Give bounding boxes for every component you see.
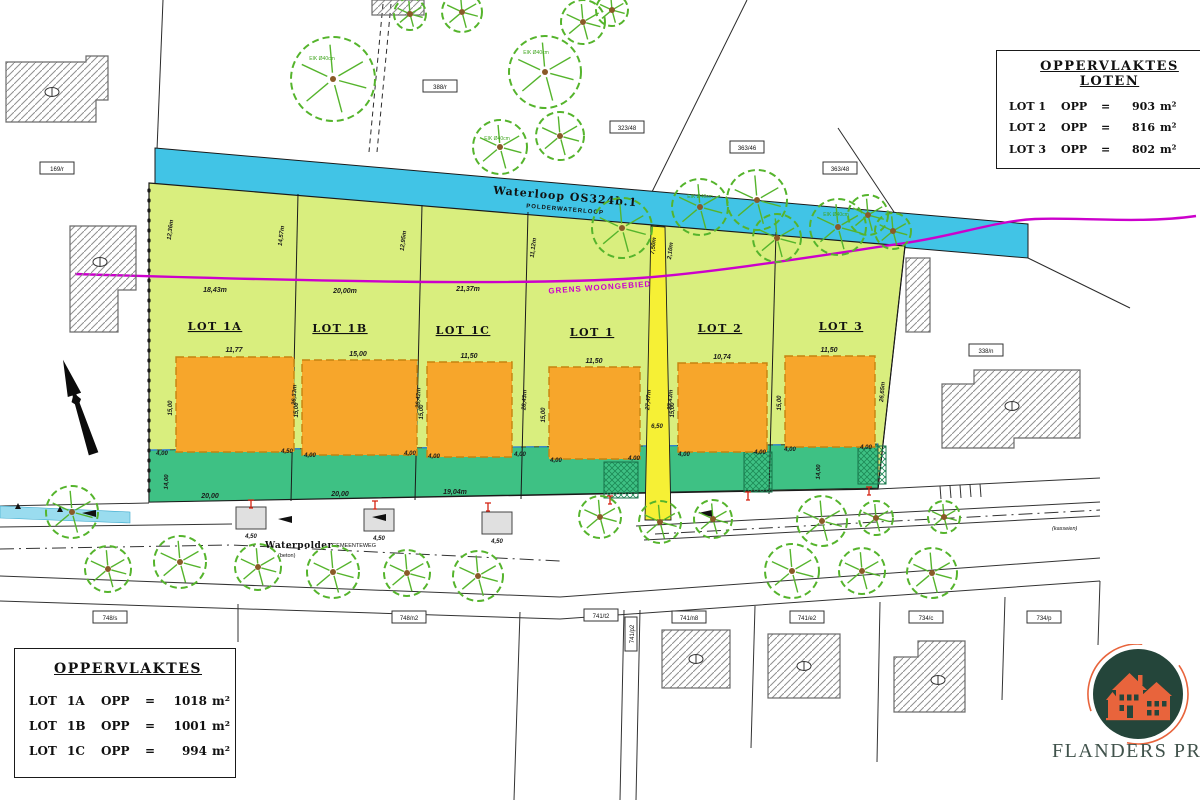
equals: = <box>145 714 163 739</box>
svg-text:169/r: 169/r <box>50 167 64 173</box>
hydrant-marker <box>485 503 491 511</box>
dim-rear: 20,00 <box>330 491 349 498</box>
parcel-label: 169/r <box>40 162 74 174</box>
area-value: 1018 <box>163 689 207 714</box>
building-zone-lot1a <box>176 357 294 452</box>
driveway-pad <box>236 507 266 529</box>
table-row: LOT 3 OPP = 802 m² <box>1009 139 1200 160</box>
building-footprint <box>372 0 424 15</box>
tree-label: EIK Ø40cm <box>484 136 510 142</box>
svg-text:363/48: 363/48 <box>831 167 850 173</box>
building-zone-lot1b <box>302 360 417 455</box>
parcel-label: 741/n8 <box>672 611 706 623</box>
area-unit: m² <box>1155 139 1179 160</box>
tree-icon <box>536 112 584 160</box>
tree-icon <box>85 546 131 592</box>
parcel-label: 323/48 <box>610 121 644 133</box>
areas-table-oppervlaktes: OPPERVLAKTES LOT 1A OPP = 1018 m² LOT 1B… <box>14 648 236 778</box>
building-zone-lot1c <box>427 362 512 457</box>
road-edge <box>0 524 232 527</box>
lot-label-1a: LOT 1A <box>188 320 243 333</box>
lot-num: 1C <box>67 739 101 764</box>
building-symbol-icon <box>689 655 703 664</box>
dim-depth: 26,33m <box>291 384 298 406</box>
tree-icon <box>694 500 732 538</box>
building-symbol-icon <box>45 88 59 97</box>
tree-icon <box>859 501 893 535</box>
table-row: LOT 1A OPP = 1018 m² <box>29 689 227 714</box>
parcel-line <box>514 612 520 800</box>
dim-margin: 4,00 <box>859 445 872 451</box>
dim-width: 11,50 <box>461 353 478 360</box>
svg-text:741/n8: 741/n8 <box>680 616 699 622</box>
driveway-pads <box>236 507 512 534</box>
area-unit: m² <box>207 714 233 739</box>
opp-label: OPP <box>101 689 145 714</box>
tree-icon <box>907 548 957 598</box>
svg-text:323/48: 323/48 <box>618 126 637 132</box>
lot-name: LOT <box>29 689 67 714</box>
dim-margin: 4,00 <box>753 450 766 456</box>
tree-icon <box>561 0 605 44</box>
area-value: 802 <box>1117 139 1155 160</box>
parcel-label: 363/46 <box>730 141 764 153</box>
areas-table-loten-title: OPPERVLAKTES LOTEN <box>1009 59 1200 89</box>
opp-label: OPP <box>101 739 145 764</box>
dim-height: 15,00 <box>777 395 783 411</box>
opp-label: OPP <box>1061 117 1101 138</box>
dim-margin: 4,00 <box>155 451 168 457</box>
dim-margin: 4,00 <box>427 454 440 460</box>
tree-icon <box>839 548 885 594</box>
area-value: 994 <box>163 739 207 764</box>
road-edge <box>878 478 1100 489</box>
lot-label-1: LOT 1 <box>570 326 615 339</box>
area-unit: m² <box>1155 96 1179 117</box>
parcel-line-dashed <box>377 4 391 152</box>
building-footprint <box>906 258 930 332</box>
lot-name: LOT 2 <box>1009 117 1061 138</box>
equals: = <box>1101 117 1117 138</box>
logo-text: FLANDERS PROPERTI <box>1052 740 1200 763</box>
parcel-line <box>157 0 163 150</box>
easement-square <box>744 452 772 492</box>
lot-label-1b: LOT 1B <box>312 322 367 335</box>
lot-name: LOT 3 <box>1009 139 1061 160</box>
lot-label-2: LOT 2 <box>698 322 743 335</box>
dim-frontage: 20,00m <box>332 288 357 295</box>
dim-margin: 4,00 <box>303 453 316 459</box>
lot-name: LOT 1 <box>1009 96 1061 117</box>
tree-icon <box>579 496 621 538</box>
dim-width: 11,77 <box>226 347 244 354</box>
dim-height: 15,00 <box>168 400 174 416</box>
dim-margin: 4,50 <box>280 449 293 455</box>
tree-icon <box>797 496 847 546</box>
table-row: LOT 1B OPP = 1001 m² <box>29 714 227 739</box>
svg-text:338/n: 338/n <box>978 349 993 355</box>
lot-name: LOT <box>29 739 67 764</box>
tree-icon <box>154 536 206 588</box>
opp-label: OPP <box>101 714 145 739</box>
parcel-line <box>751 606 755 748</box>
dim-rear: 20,00 <box>200 493 219 500</box>
dim-width: 11,50 <box>586 358 603 365</box>
table-row: LOT 1C OPP = 994 m² <box>29 739 227 764</box>
dim-depth: 28,43m <box>521 389 528 411</box>
tree-icon <box>291 37 375 121</box>
building-zone-lot1 <box>549 367 640 459</box>
parcel-line <box>1098 581 1100 645</box>
dim-margin: 4,00 <box>549 458 562 464</box>
svg-text:748/n2: 748/n2 <box>400 616 419 622</box>
parcel-line <box>620 610 624 800</box>
dim-height: 15,00 <box>541 407 547 423</box>
building-symbol-icon <box>797 662 811 671</box>
parcel-label: 741/p2 <box>625 617 637 651</box>
lot-label-3: LOT 3 <box>819 320 864 333</box>
dim-yellow: 6,50 <box>651 424 663 430</box>
tree-label: EIK Ø40cm <box>687 194 713 200</box>
tree-icon <box>765 544 819 598</box>
lot-name: LOT <box>29 714 67 739</box>
areas-table-title: OPPERVLAKTES <box>29 661 227 677</box>
table-row: LOT 2 OPP = 816 m² <box>1009 117 1200 138</box>
dim-drive: 4,50 <box>490 539 503 545</box>
dim-frontage: 21,37m <box>455 286 480 293</box>
parcel-label: 734/p <box>1027 611 1061 623</box>
culvert-ticks <box>940 484 981 499</box>
area-value: 903 <box>1117 96 1155 117</box>
tree-icon <box>473 120 527 174</box>
tree-icon <box>307 546 359 598</box>
dim-green-depth: 14,00 <box>164 474 171 490</box>
building-symbol-icon <box>931 676 945 685</box>
building-symbol-icon <box>93 258 107 267</box>
parcel-line <box>1028 258 1130 308</box>
svg-text:741/p2: 741/p2 <box>630 624 636 643</box>
dim-margin: 4,00 <box>783 447 796 453</box>
driveway-pad <box>482 512 512 534</box>
area-value: 1001 <box>163 714 207 739</box>
area-unit: m² <box>207 739 233 764</box>
parcel-label: 363/48 <box>823 162 857 174</box>
tree-icon <box>384 550 430 596</box>
equals: = <box>1101 96 1117 117</box>
dim-green-depth: 14,00 <box>816 464 823 480</box>
equals: = <box>145 739 163 764</box>
company-logo <box>1086 644 1190 748</box>
dim-width: 10,74 <box>713 354 731 361</box>
building-footprint <box>894 641 965 712</box>
area-unit: m² <box>1155 117 1179 138</box>
tree-icon <box>509 36 581 108</box>
building-zone-lot3 <box>785 356 875 447</box>
easement-square <box>604 462 638 498</box>
lot-num: 1A <box>67 689 101 714</box>
parcel-label: 338/n <box>969 344 1003 356</box>
driveway-pad <box>364 509 394 531</box>
parcel-label: 748/n2 <box>392 611 426 623</box>
tree-icon <box>442 0 482 32</box>
parcel-label: 388/r <box>423 80 457 92</box>
tree-label: EIK Ø40cm <box>309 56 335 62</box>
road-edge <box>0 558 1100 597</box>
road-surface: (beton) <box>278 553 296 559</box>
dim-width: 11,50 <box>821 347 838 354</box>
tree-icon <box>928 501 960 533</box>
building-footprint <box>70 226 136 332</box>
parcel-label: 748/s <box>93 611 127 623</box>
dim-rear: 19,04m <box>443 489 467 496</box>
area-value: 816 <box>1117 117 1155 138</box>
areas-table-loten: OPPERVLAKTES LOTEN LOT 1 OPP = 903 m² LO… <box>996 50 1200 169</box>
svg-text:741/e2: 741/e2 <box>798 616 817 622</box>
svg-text:741/t2: 741/t2 <box>593 614 610 620</box>
north-arrow-icon <box>56 358 100 456</box>
lot-label-1c: LOT 1C <box>436 324 491 337</box>
road-edge <box>0 503 149 506</box>
equals: = <box>1101 139 1117 160</box>
parcel-label: 741/t2 <box>584 609 618 621</box>
svg-text:363/46: 363/46 <box>738 146 757 152</box>
svg-text:734/p: 734/p <box>1036 616 1052 622</box>
easement-square <box>858 446 886 484</box>
opp-label: OPP <box>1061 96 1101 117</box>
svg-text:388/r: 388/r <box>433 85 447 91</box>
road-surface-right: (kasseien) <box>1052 526 1078 532</box>
building-symbol-icon <box>1005 402 1019 411</box>
dim-margin: 4,00 <box>403 451 416 457</box>
dim-margin: 4,00 <box>513 452 526 458</box>
parcel-line <box>645 0 747 206</box>
parcel-label: 734/c <box>909 611 943 623</box>
cadastral-plan-page: Waterloop OS324b.1 POLDERWATERLOOP GRENS… <box>0 0 1200 800</box>
tree-label: EIK Ø40cm <box>523 50 549 56</box>
opp-label: OPP <box>1061 139 1101 160</box>
equals: = <box>145 689 163 714</box>
tree-icon <box>235 544 281 590</box>
building-zone-lot2 <box>678 363 767 452</box>
arrow-icon <box>278 516 292 523</box>
table-row: LOT 1 OPP = 903 m² <box>1009 96 1200 117</box>
parcel-line <box>1002 597 1005 700</box>
parcel-line-dashed <box>369 4 383 152</box>
dim-margin: 4,00 <box>627 456 640 462</box>
svg-text:748/s: 748/s <box>103 616 118 622</box>
area-unit: m² <box>207 689 233 714</box>
hydrant-marker <box>372 501 378 509</box>
svg-text:734/c: 734/c <box>919 616 934 622</box>
dim-drive: 4,50 <box>244 534 257 540</box>
road-arrows <box>82 510 712 523</box>
dim-depth: 26,42m <box>415 387 422 409</box>
hydrant-marker <box>745 492 751 500</box>
parcel-label: 741/e2 <box>790 611 824 623</box>
dim-width: 15,00 <box>349 351 367 358</box>
dim-drive: 4,50 <box>372 536 385 542</box>
lot-num: 1B <box>67 714 101 739</box>
tree-icon <box>596 0 628 26</box>
parcel-line <box>877 602 880 762</box>
dim-frontage: 18,43m <box>203 287 227 294</box>
dim-margin: 4,00 <box>677 452 690 458</box>
tree-label: EIK Ø40cm <box>823 212 849 218</box>
